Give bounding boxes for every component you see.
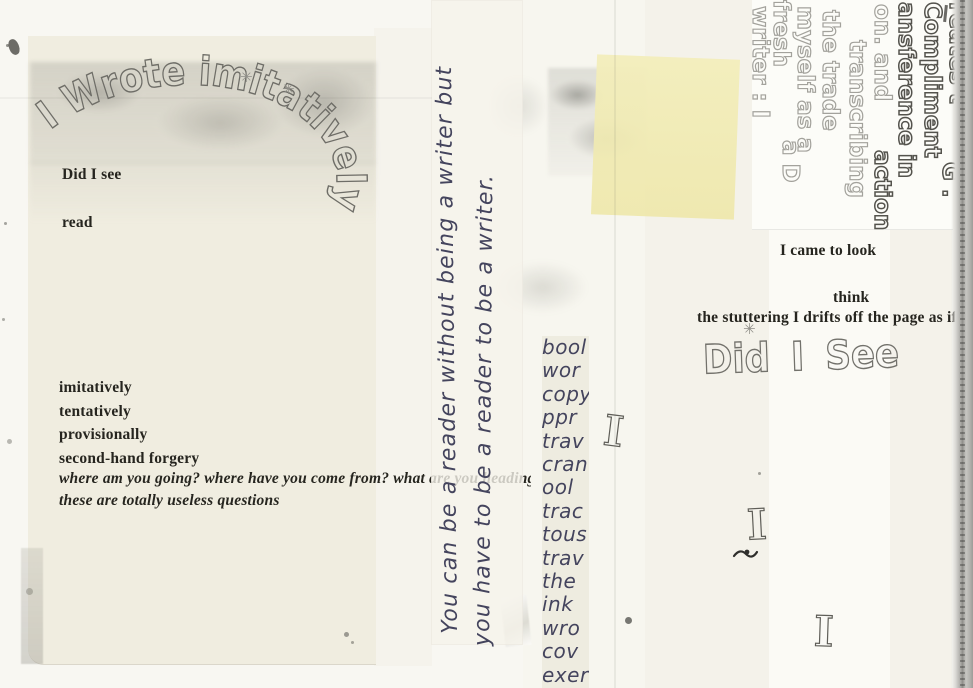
word-fragment: trac [542, 500, 589, 523]
bubble-i-glyph: I [594, 404, 638, 456]
bubble-i-glyph: I [804, 604, 848, 656]
scanned-collage-page: Did I see read imitatively tentatively p… [0, 0, 973, 688]
svg-text:I: I [746, 500, 768, 550]
rotated-line: on. and [869, 4, 895, 101]
typed-think: think [833, 289, 869, 307]
adverb-item: tentatively [59, 400, 199, 424]
bubble-did-i-see: Did I See ✳ [697, 318, 912, 396]
vertical-fold-crease [614, 0, 616, 688]
scanner-edge-grain [960, 0, 965, 688]
word-fragment: the [542, 570, 589, 593]
adverb-list: imitatively tentatively provisionally se… [59, 376, 199, 470]
ink-smudge [733, 546, 759, 562]
adverb-item: second-hand forgery [59, 447, 199, 471]
asterisk-dot-icon: ✳ [743, 320, 756, 338]
bubble-title-lettering: I Wrote imitatively ✳ ✳ [24, 52, 374, 227]
rotated-line: myself as a [792, 6, 818, 153]
word-fragment: cran [542, 453, 589, 476]
rotated-line: the trade [817, 10, 843, 131]
svg-text:I: I [601, 406, 626, 457]
word-fragment: ool [542, 476, 589, 499]
typed-answer-line: these are totally useless questions [59, 492, 280, 510]
word-fragment: exer [542, 664, 589, 687]
bubble-did-i-see-text: Did I See [702, 331, 899, 384]
rotated-line: action [869, 150, 895, 230]
typed-came-to-look: I came to look [780, 242, 876, 260]
word-fragment-column: bool wor copy ppr trav cran ool trac tou… [542, 336, 589, 688]
rotated-line: transcribing [844, 40, 870, 198]
paper-gap-band [374, 28, 432, 666]
word-fragment: ppr [542, 406, 589, 429]
word-fragment: copy [542, 383, 589, 406]
rotated-line: Compliment [919, 2, 945, 158]
ink-blob [7, 38, 22, 56]
asterisk-dot-icon: ✳ [282, 80, 295, 98]
word-fragment: trav [542, 430, 589, 453]
handwriting-line-2: you have to be a reader to be a writer. [470, 174, 498, 646]
adverb-item: provisionally [59, 423, 199, 447]
svg-text:I: I [813, 607, 834, 657]
rotated-line: writer : I [747, 6, 773, 118]
rotated-line: ansference in [893, 2, 919, 178]
bubble-title-text: I Wrote imitatively [29, 49, 373, 217]
word-fragment: tous [542, 523, 589, 546]
word-fragment: wor [542, 359, 589, 382]
word-fragment: trav [542, 547, 589, 570]
word-fragment: ink [542, 593, 589, 616]
word-fragment: wro [542, 617, 589, 640]
asterisk-dot-icon: ✳ [240, 68, 253, 86]
adverb-item: imitatively [59, 376, 199, 400]
word-fragment: bool [542, 336, 589, 359]
word-fragment: cov [542, 640, 589, 663]
scanner-edge-strip [951, 0, 973, 688]
rotated-line: a D [777, 140, 803, 183]
bubble-i-glyph: I [737, 497, 781, 549]
rotated-bubble-text-block: reates t Compliment ansference in on. an… [738, 0, 973, 238]
tape-edge [21, 548, 43, 664]
svg-text:I Wrote imitatively: I Wrote imitatively [29, 49, 373, 217]
